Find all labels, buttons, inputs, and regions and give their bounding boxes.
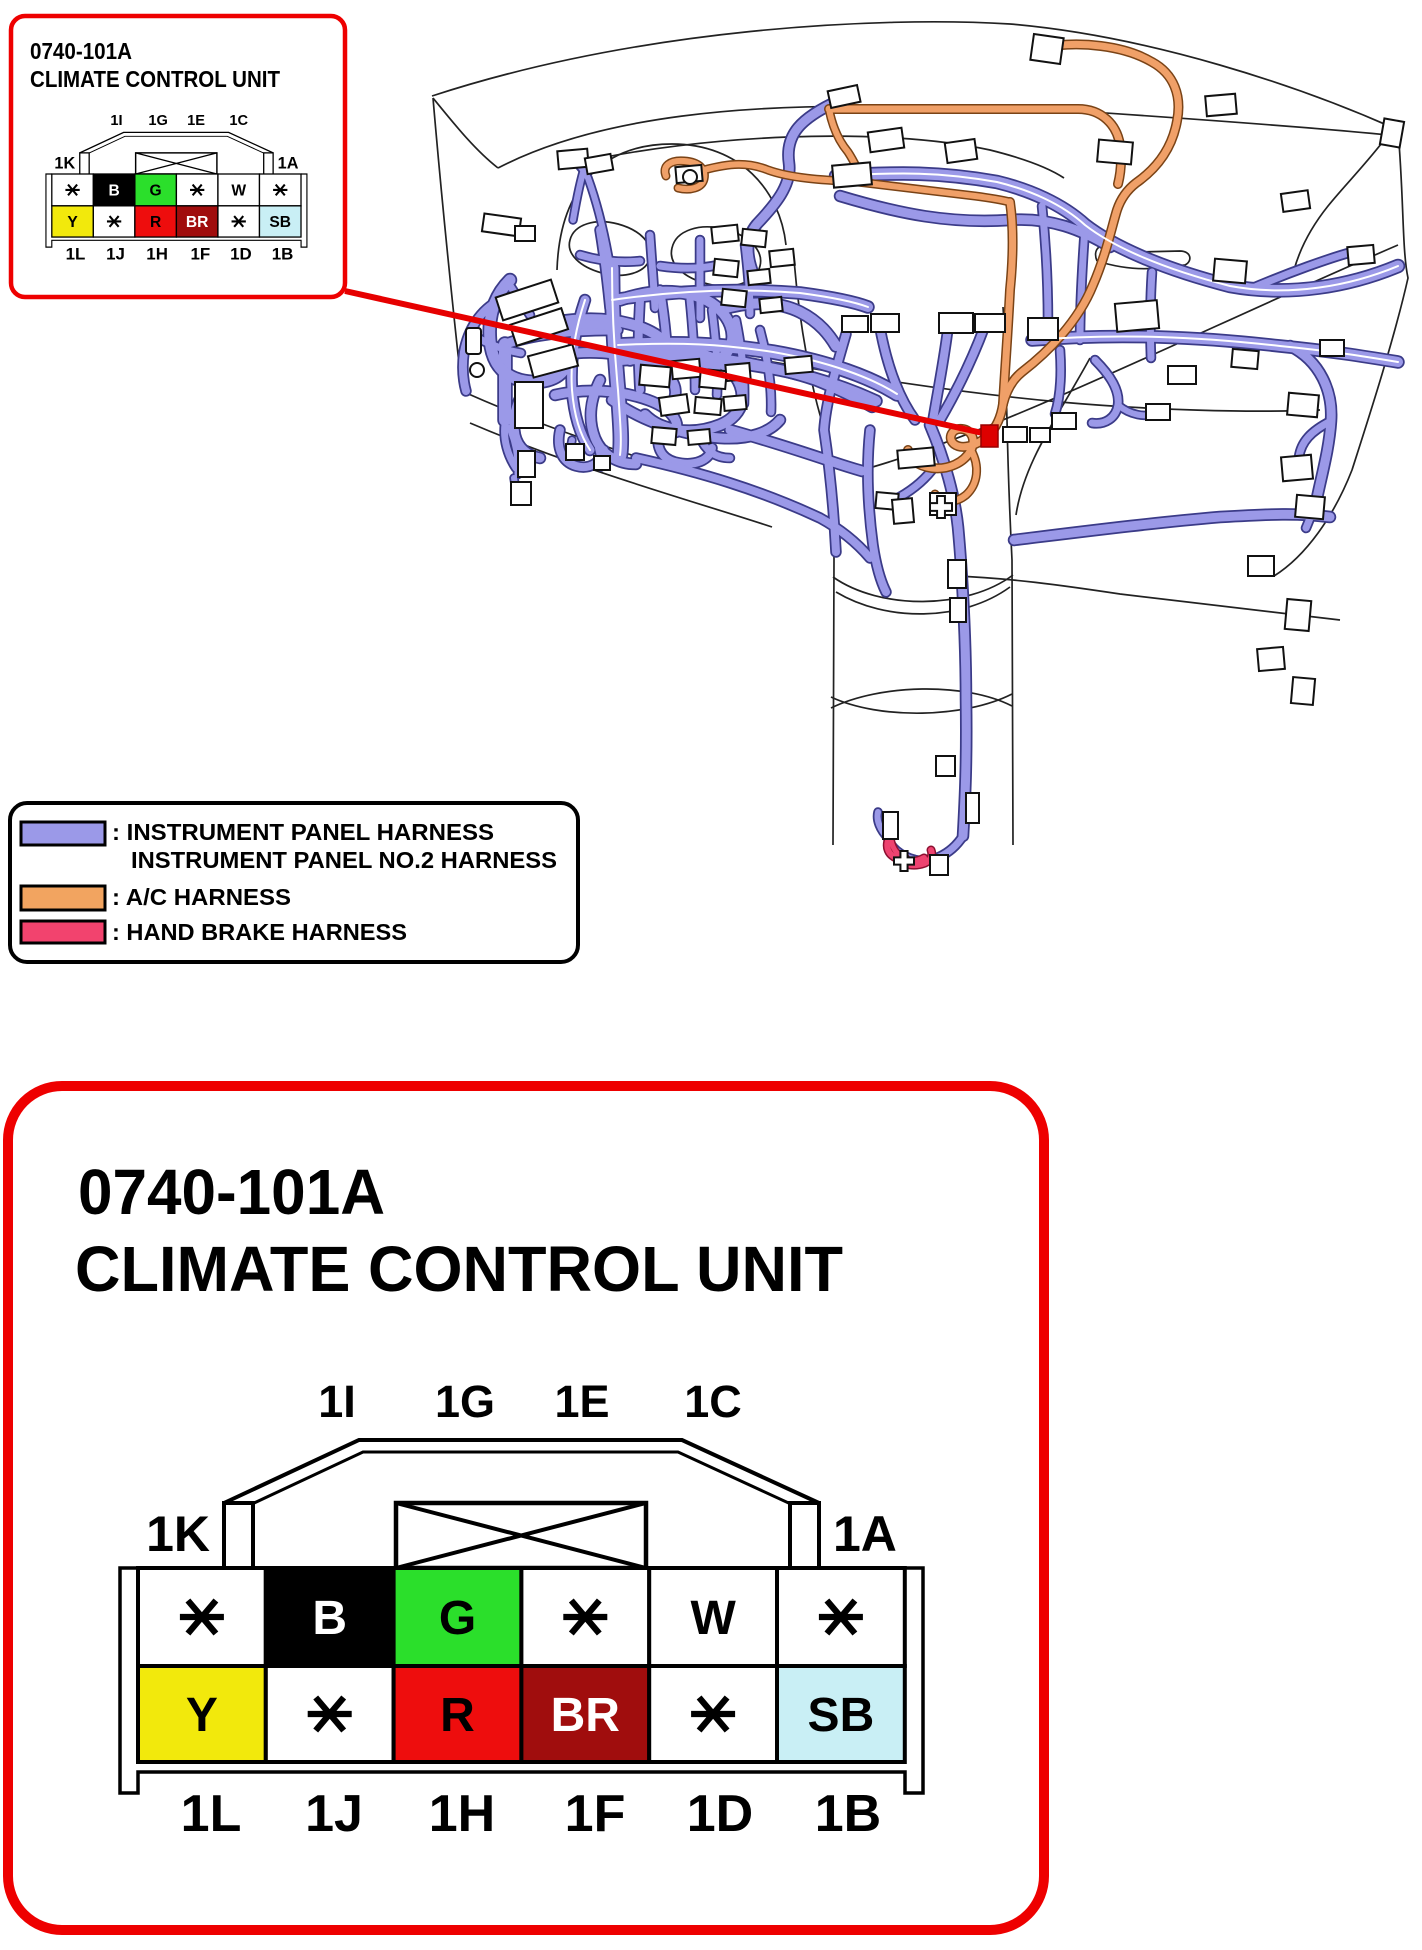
svg-text:CLIMATE CONTROL UNIT: CLIMATE CONTROL UNIT	[75, 1233, 843, 1305]
svg-text:INSTRUMENT PANEL NO.2 HARNESS: INSTRUMENT PANEL NO.2 HARNESS	[131, 847, 557, 873]
svg-text:: INSTRUMENT PANEL HARNESS: : INSTRUMENT PANEL HARNESS	[112, 819, 494, 845]
svg-text:: HAND BRAKE HARNESS: : HAND BRAKE HARNESS	[112, 919, 407, 945]
svg-text:: A/C HARNESS: : A/C HARNESS	[112, 884, 291, 910]
svg-text:0740-101A: 0740-101A	[78, 1156, 385, 1228]
svg-text:CLIMATE CONTROL UNIT: CLIMATE CONTROL UNIT	[30, 66, 281, 92]
svg-text:0740-101A: 0740-101A	[30, 38, 132, 64]
